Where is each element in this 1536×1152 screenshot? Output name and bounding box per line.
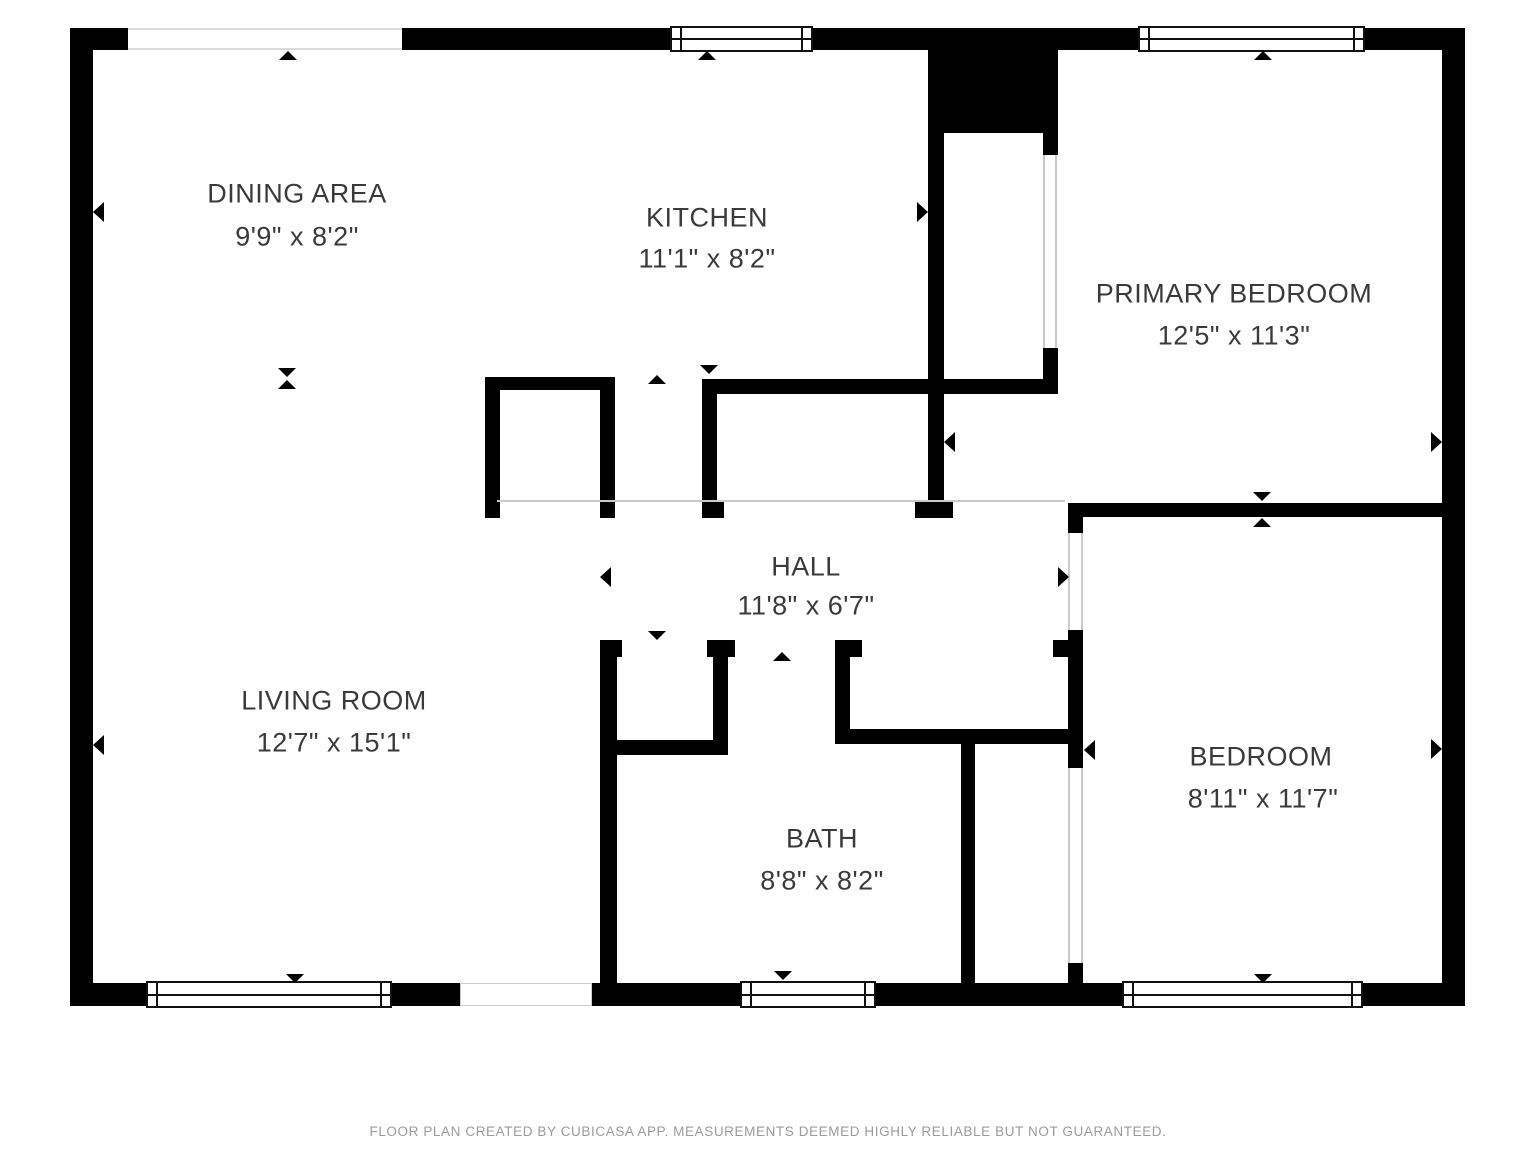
primary-closet-opening-line <box>1043 155 1045 348</box>
room-label-bedroom: BEDROOM <box>1189 742 1332 773</box>
door-direction-marker-icon <box>774 971 792 980</box>
room-dims-living-room: 12'7" x 15'1" <box>257 728 412 759</box>
room-dims-bath: 8'8" x 8'2" <box>760 866 884 897</box>
wall-primary-bedroom-divider <box>1068 503 1442 517</box>
wall-nook-jamb <box>707 640 735 657</box>
primary-closet-opening-line <box>1055 155 1057 348</box>
door-direction-marker-icon <box>698 51 716 60</box>
room-dims-primary-bedroom: 12'5" x 11'3" <box>1158 321 1311 352</box>
footer-disclaimer: FLOOR PLAN CREATED BY CUBICASA APP. MEAS… <box>0 1124 1536 1139</box>
door-direction-marker-icon <box>1253 492 1271 501</box>
door-direction-marker-icon <box>917 202 928 222</box>
primary-bedroom-window <box>1138 26 1365 52</box>
room-label-living-room: LIVING ROOM <box>241 686 427 717</box>
living-room-window <box>146 981 392 1008</box>
floor-plan: DINING AREA 9'9" x 8'2" KITCHEN 11'1" x … <box>0 0 1536 1152</box>
door-direction-marker-icon <box>1254 51 1272 60</box>
room-dims-hall: 11'8" x 6'7" <box>737 591 874 622</box>
wall-outer-right <box>1442 28 1465 1006</box>
door-direction-marker-icon <box>1084 740 1095 760</box>
wall-bath-north <box>835 729 1068 744</box>
bath-window <box>740 981 876 1008</box>
door-direction-marker-icon <box>700 365 718 374</box>
bedroom-window <box>1122 981 1363 1008</box>
wall-bath-east <box>961 744 975 983</box>
door-direction-marker-icon <box>279 51 297 60</box>
wall-nook-east <box>713 657 728 755</box>
door-direction-marker-icon <box>278 380 296 389</box>
door-direction-marker-icon <box>648 375 666 384</box>
room-label-bath: BATH <box>786 824 858 855</box>
wall-kitchen-right-base <box>915 502 953 518</box>
wall-bath-west-stub <box>600 640 622 657</box>
door-direction-marker-icon <box>648 631 666 640</box>
wall-closet-top <box>485 377 615 390</box>
wall-bedroom-west-bottom <box>1068 963 1083 985</box>
door-direction-marker-icon <box>93 202 104 222</box>
hall-open-boundary-line <box>497 500 1065 502</box>
wall-hall-passage-base <box>702 502 724 518</box>
wall-closet-west <box>485 377 500 518</box>
door-direction-marker-icon <box>1253 518 1271 527</box>
door-direction-marker-icon <box>1058 567 1069 587</box>
entry-door-opening <box>460 983 592 1006</box>
wall-bath-west <box>600 640 617 983</box>
wall-hall-passage <box>702 379 717 518</box>
room-label-primary-bedroom: PRIMARY BEDROOM <box>1096 279 1373 310</box>
room-dims-bedroom: 8'11" x 11'7" <box>1188 784 1339 815</box>
room-label-hall: HALL <box>771 552 841 583</box>
wall-kitchen-right <box>928 50 944 502</box>
bedroom-closet-opening-line <box>1081 768 1083 963</box>
wall-bedroom-west-stub <box>1053 640 1068 657</box>
door-direction-marker-icon <box>93 735 104 755</box>
wall-primary-closet-east-top <box>1043 133 1058 155</box>
door-direction-marker-icon <box>286 974 304 983</box>
room-dims-kitchen: 11'1" x 8'2" <box>638 244 775 275</box>
wall-chimney-block <box>930 28 1058 133</box>
wall-kitchen-south <box>702 379 1058 394</box>
door-direction-marker-icon <box>944 432 955 452</box>
dining-window <box>128 28 402 50</box>
door-direction-marker-icon <box>1431 739 1442 759</box>
door-direction-marker-icon <box>278 368 296 377</box>
room-label-kitchen: KITCHEN <box>646 203 768 234</box>
wall-bedroom-west-mid <box>1068 630 1083 768</box>
door-direction-marker-icon <box>600 567 611 587</box>
wall-nook-south <box>600 740 728 755</box>
room-dims-dining-area: 9'9" x 8'2" <box>235 222 359 253</box>
wall-outer-left <box>70 28 93 1006</box>
kitchen-window <box>670 26 813 52</box>
door-direction-marker-icon <box>1254 974 1272 983</box>
room-label-dining-area: DINING AREA <box>207 179 387 210</box>
door-direction-marker-icon <box>773 652 791 661</box>
bedroom-door-opening-line <box>1081 533 1083 630</box>
bedroom-closet-opening-line <box>1068 768 1070 963</box>
door-direction-marker-icon <box>1431 432 1442 452</box>
wall-closet-east <box>600 377 615 518</box>
